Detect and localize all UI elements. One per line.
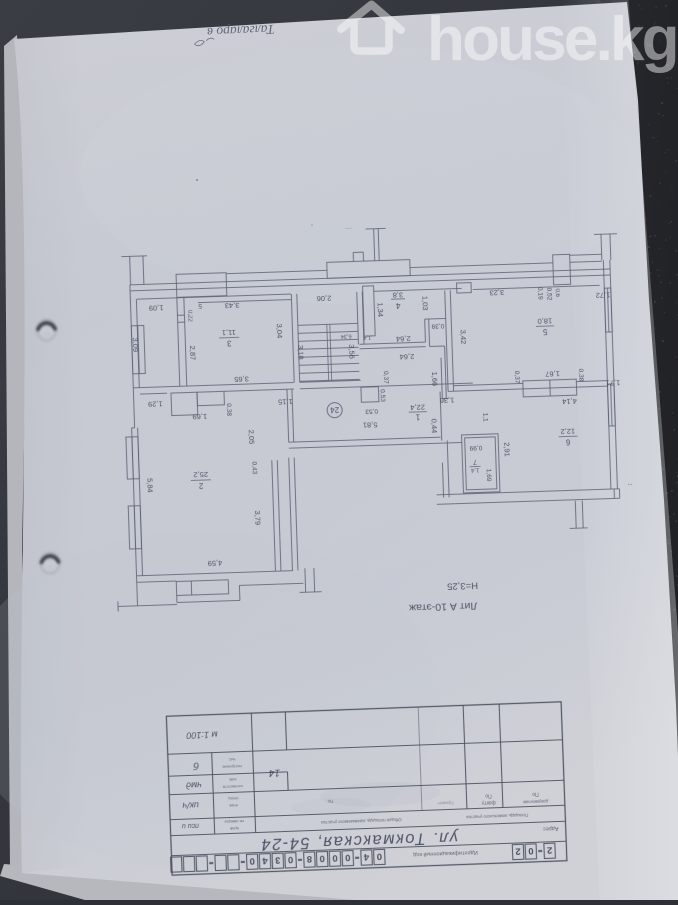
svg-text:1,4: 1,4 (470, 466, 479, 472)
svg-text:0,37: 0,37 (513, 371, 520, 384)
svg-text:3: 3 (275, 854, 281, 865)
svg-text:1,03: 1,03 (420, 296, 429, 311)
svg-text:25,2: 25,2 (193, 470, 208, 479)
svg-text:12,2: 12,2 (560, 427, 575, 436)
svg-text:H=3,25: H=3,25 (447, 580, 478, 592)
svg-text:пси и: пси и (182, 822, 199, 830)
svg-text:2: 2 (198, 481, 203, 490)
svg-text:1,34: 1,34 (375, 302, 384, 317)
svg-text:Примеч: Примеч (437, 800, 454, 806)
svg-text:8: 8 (307, 853, 313, 864)
svg-text:3,04: 3,04 (275, 324, 284, 339)
svg-text:2,87: 2,87 (188, 345, 197, 360)
svg-text:2,64: 2,64 (399, 352, 414, 361)
svg-text:0,19: 0,19 (536, 287, 543, 300)
svg-text:м 1:100: м 1:100 (186, 729, 218, 740)
svg-text:1,15: 1,15 (278, 397, 293, 406)
svg-text:11,1: 11,1 (222, 328, 236, 337)
svg-text:документам: документам (523, 799, 548, 805)
svg-text:1: 1 (415, 412, 420, 421)
svg-text:2,05: 2,05 (247, 429, 256, 444)
svg-text:0: 0 (288, 854, 294, 865)
svg-text:3,23: 3,23 (489, 288, 504, 297)
svg-text:1,29: 1,29 (148, 399, 163, 408)
svg-text:1,1: 1,1 (482, 413, 489, 423)
svg-text:0,6: 0,6 (554, 288, 560, 297)
svg-text:этаж: этаж (229, 803, 238, 808)
svg-text:1,67: 1,67 (545, 369, 560, 378)
svg-text:3,65: 3,65 (234, 374, 249, 383)
svg-text:2,64: 2,64 (396, 334, 411, 343)
svg-text:3,09: 3,09 (130, 337, 139, 352)
svg-text:0,44: 0,44 (429, 418, 438, 433)
svg-text:чмд: чмд (186, 780, 202, 791)
svg-text:тыс.: тыс. (228, 757, 236, 762)
svg-text:0,99: 0,99 (469, 444, 482, 451)
svg-text:18,0: 18,0 (537, 316, 552, 325)
svg-text:не заверш: не заверш (225, 819, 245, 825)
svg-text:0,38: 0,38 (225, 403, 232, 416)
svg-text:0,22: 0,22 (186, 310, 192, 323)
svg-text:0: 0 (332, 852, 338, 863)
svg-text:3: 3 (226, 339, 231, 348)
svg-text:площ: площ (228, 796, 239, 801)
svg-text:Адрес: Адрес (542, 825, 558, 832)
svg-text:0: 0 (249, 855, 255, 866)
svg-text:0: 0 (319, 853, 325, 864)
svg-text:построена: построена (222, 764, 242, 770)
svg-text:0,39: 0,39 (431, 322, 444, 329)
svg-text:По: По (532, 791, 539, 797)
svg-text:2,91: 2,91 (503, 442, 512, 457)
svg-text:1,69: 1,69 (485, 469, 492, 482)
svg-text:Лит А 10-этаж: Лит А 10-этаж (409, 600, 478, 614)
svg-text:0: 0 (528, 845, 534, 856)
svg-text:0,37: 0,37 (382, 371, 389, 384)
svg-text:2: 2 (547, 844, 553, 855)
svg-text:2: 2 (515, 845, 521, 856)
svg-text:3,42: 3,42 (458, 329, 467, 344)
svg-text:4,59: 4,59 (208, 558, 223, 567)
svg-text:house.kg: house.kg (427, 5, 677, 74)
svg-text:1,36: 1,36 (440, 395, 455, 404)
svg-text:0: 0 (345, 852, 351, 863)
svg-text:1,71: 1,71 (605, 378, 620, 387)
svg-text:1,09: 1,09 (149, 303, 164, 312)
svg-text:По: По (485, 793, 492, 799)
svg-text:5: 5 (198, 302, 202, 309)
svg-text:3,18: 3,18 (296, 345, 305, 360)
svg-text:14: 14 (268, 767, 280, 778)
svg-text:факту: факту (481, 799, 496, 806)
svg-text:б: б (193, 760, 199, 772)
svg-text:2,06: 2,06 (316, 294, 331, 303)
svg-text:5,81: 5,81 (363, 420, 378, 429)
svg-text:5,84: 5,84 (145, 478, 154, 493)
svg-text:7: 7 (473, 458, 477, 465)
svg-text:22,4: 22,4 (410, 402, 425, 411)
svg-text:4,14: 4,14 (562, 396, 577, 405)
svg-text:3,56: 3,56 (347, 344, 356, 359)
svg-text:5: 5 (542, 327, 547, 336)
svg-text:0,43: 0,43 (251, 461, 258, 474)
svg-text:0,52: 0,52 (545, 288, 552, 301)
svg-text:0: 0 (376, 851, 382, 862)
svg-text:0,38: 0,38 (577, 369, 584, 382)
svg-text:1,72: 1,72 (596, 290, 611, 299)
svg-text:0,53: 0,53 (379, 389, 386, 402)
svg-text:1,69: 1,69 (192, 412, 207, 421)
svg-text:6,34: 6,34 (341, 333, 352, 339)
svg-text:24: 24 (329, 405, 339, 414)
svg-text:4: 4 (395, 301, 400, 310)
svg-text:0,53: 0,53 (365, 407, 378, 414)
svg-text:este: este (228, 777, 237, 782)
svg-text:ик/ч: ик/ч (182, 800, 199, 811)
svg-text:соответств: соответств (223, 784, 243, 790)
svg-text:3,8: 3,8 (392, 290, 403, 299)
svg-text:3,79: 3,79 (253, 510, 262, 525)
svg-text:3,43: 3,43 (225, 301, 240, 310)
svg-text:1,4: 1,4 (363, 334, 371, 340)
svg-text:прав: прав (230, 826, 239, 831)
svg-text:1,66: 1,66 (430, 371, 439, 386)
svg-text:..: .. (628, 482, 633, 491)
